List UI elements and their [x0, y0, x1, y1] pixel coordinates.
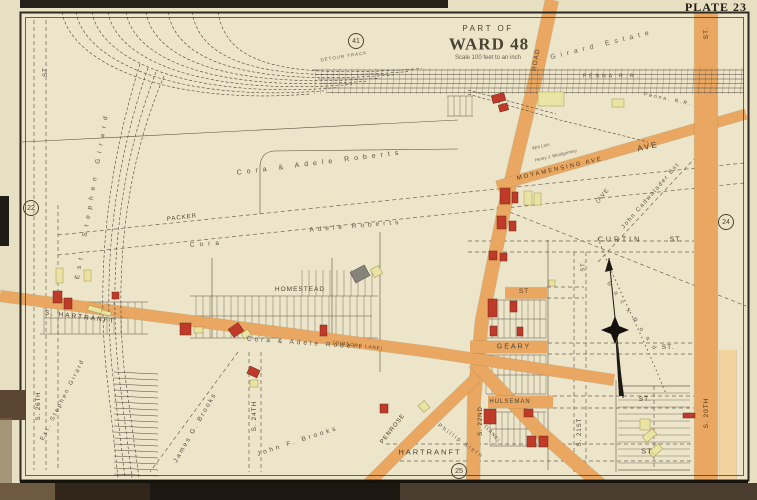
building-brick [490, 326, 497, 336]
geary-st-label: ST. [662, 345, 674, 352]
building-frame [642, 429, 656, 443]
building-frame [534, 193, 541, 205]
adjacent-plate-ref-24: 24 [718, 214, 734, 230]
page-edge-bottom-4 [400, 483, 757, 500]
buildings [53, 92, 695, 457]
map-linework [0, 0, 757, 500]
railroads [62, 12, 744, 478]
building-brick [500, 253, 507, 261]
building-frame [549, 280, 555, 286]
building-brick [500, 188, 510, 204]
page-edge-left-brown [0, 390, 26, 420]
building-brick [320, 325, 327, 336]
building-brick [497, 216, 506, 229]
adjacent-plate-ref-41: 41 [348, 33, 364, 49]
building-brick [683, 413, 695, 418]
building-frame [418, 400, 430, 412]
building-brick [517, 327, 523, 336]
building-brick [488, 299, 497, 317]
hartranft-bottom-label: HARTRANFT [398, 448, 461, 456]
building-brick [53, 291, 62, 303]
building-brick [498, 103, 509, 112]
building-frame [538, 92, 564, 106]
building-brick [512, 192, 518, 203]
building-brick [491, 92, 506, 103]
building-frame [56, 268, 63, 283]
page-edge-left-black [0, 196, 9, 246]
plate-number: PLATE 23 [685, 0, 747, 15]
building-frame [84, 270, 91, 281]
building-brick [489, 251, 497, 260]
building-brick [539, 436, 548, 447]
st-top-right-label: ST. [704, 27, 711, 39]
building-frame [524, 191, 532, 205]
building-stone [350, 265, 370, 283]
s-22nd-label: S. 22ND [478, 406, 484, 436]
adjacent-plate-ref-22: 22 [23, 200, 39, 216]
adjacent-plate-ref-25: 25 [451, 463, 467, 479]
hulseman-label: HULSEMAN [489, 399, 530, 405]
penna-rr-main-label: PENNA R.R. [583, 75, 641, 80]
page-edge-bottom-1 [0, 483, 55, 500]
ward-title-label: WARD 48 [449, 36, 529, 53]
hulseman-st-label: ST. [639, 397, 651, 404]
building-brick [509, 221, 516, 231]
building-frame [250, 380, 258, 387]
building-frame [194, 327, 203, 333]
building-brick [180, 323, 191, 335]
part-of-label: PART OF [462, 25, 513, 33]
page-edge-bottom-2 [55, 483, 150, 500]
building-brick [64, 298, 72, 309]
homestead-label: HOMESTEAD [275, 287, 325, 294]
page-edge-top [20, 0, 448, 8]
geary-label: GEARY [497, 344, 531, 351]
building-brick [524, 409, 533, 417]
building-frame [640, 419, 650, 430]
page-edge-bottom-3 [150, 483, 400, 500]
s-24th-label: S. 24TH [252, 401, 259, 432]
s-20th-label: S. 20TH [704, 398, 711, 429]
s-21st-st-label: ST. [581, 261, 587, 272]
lot-lines [22, 96, 690, 472]
curtin-label: CURTIN [598, 237, 642, 244]
atlas-plate-page: PART OFWARD 48Scale 100 feet to an inchR… [0, 0, 757, 500]
building-brick [380, 404, 388, 413]
s-26th-label: S. 26TH [36, 391, 42, 420]
st-mid-label: ST [519, 289, 529, 296]
st-left-top-label: ST [43, 67, 49, 77]
scale-note-label: Scale 100 feet to an inch [455, 55, 521, 61]
s-21st-label: S. 21ST [577, 418, 583, 447]
curtin-st-label: ST. [669, 237, 682, 244]
building-brick [527, 436, 536, 447]
building-brick [484, 409, 496, 424]
building-brick [510, 301, 517, 312]
building-brick [112, 292, 119, 299]
building-frame [612, 99, 624, 107]
compass-rose [601, 316, 629, 344]
hartranft-b-st-label: ST. [641, 447, 655, 455]
